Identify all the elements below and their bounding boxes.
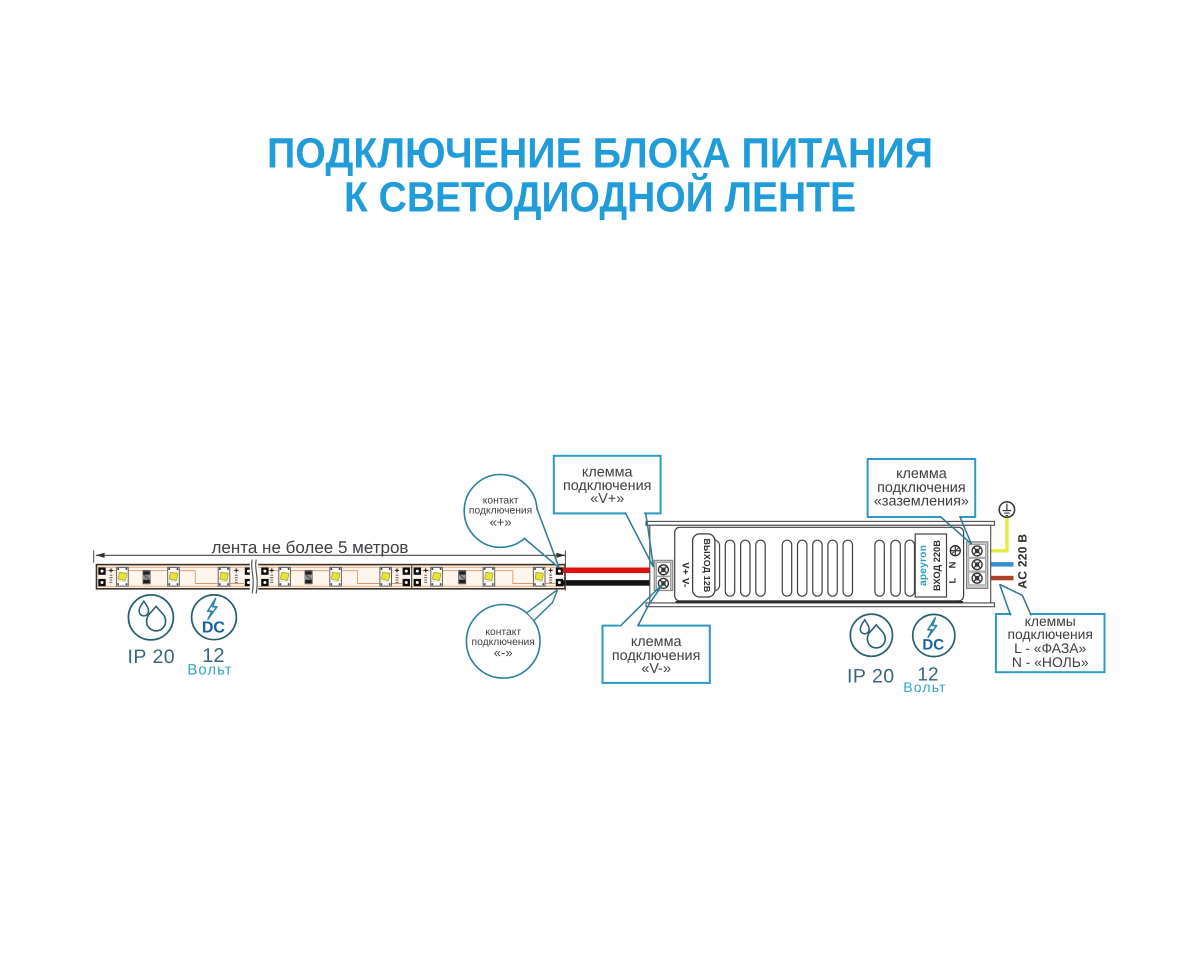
svg-text:лента не более 5 метров: лента не более 5 метров [212, 538, 409, 557]
svg-text:К СВЕТОДИОДНОЙ ЛЕНТЕ: К СВЕТОДИОДНОЙ ЛЕНТЕ [344, 173, 856, 222]
svg-text:ПОДКЛЮЧЕНИЕ БЛОКА ПИТАНИЯ: ПОДКЛЮЧЕНИЕ БЛОКА ПИТАНИЯ [267, 131, 933, 178]
svg-text:«V+»: «V+» [590, 491, 624, 507]
svg-text:«V-»: «V-» [641, 661, 671, 677]
svg-text:apeyron: apeyron [918, 545, 929, 586]
svg-text:Вольт: Вольт [903, 679, 947, 695]
svg-text:N: N [946, 561, 957, 568]
svg-text:ВХОД 220В: ВХОД 220В [932, 540, 942, 591]
svg-text:ВЫХОД 12В: ВЫХОД 12В [702, 539, 712, 593]
svg-text:IP 20: IP 20 [127, 646, 175, 668]
svg-text:«+»: «+» [490, 515, 512, 530]
svg-text:«заземления»: «заземления» [874, 493, 969, 509]
svg-text:DC: DC [922, 637, 944, 654]
svg-text:Вольт: Вольт [187, 662, 232, 679]
svg-text:DC: DC [202, 619, 226, 636]
svg-text:N - «НОЛЬ»: N - «НОЛЬ» [1012, 654, 1089, 670]
svg-text:V+ V-: V+ V- [680, 562, 691, 588]
svg-text:IP 20: IP 20 [847, 665, 895, 687]
svg-text:AC 220 В: AC 220 В [1016, 534, 1030, 589]
svg-text:L: L [946, 577, 957, 583]
svg-text:«-»: «-» [494, 645, 513, 660]
